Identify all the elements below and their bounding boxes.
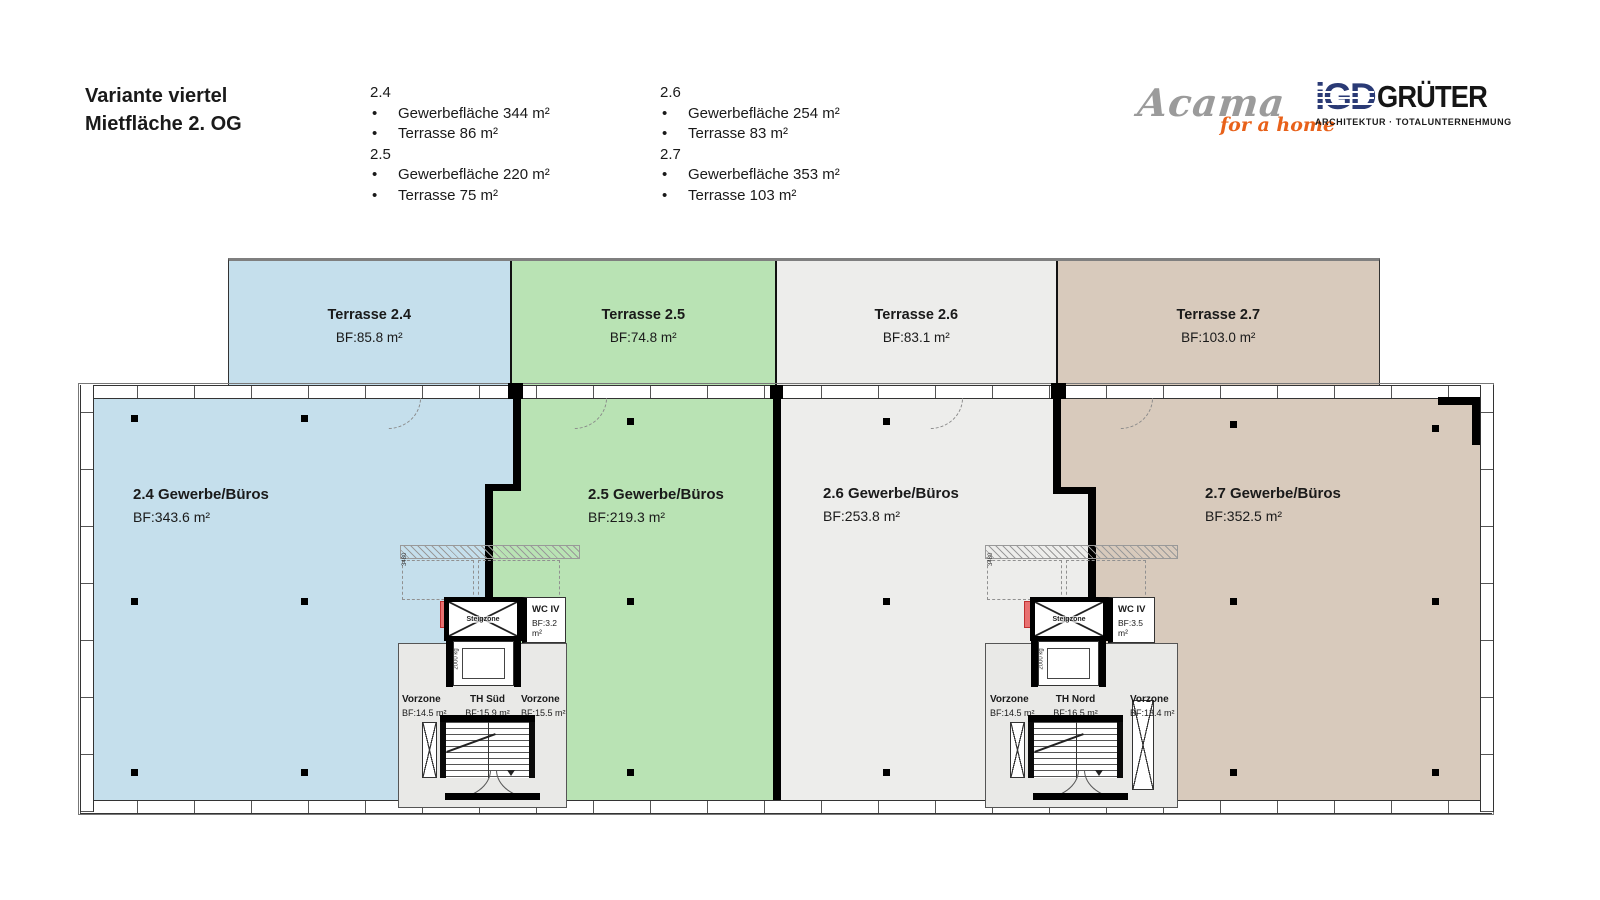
elevator-capacity-label: 2000 kg (454, 648, 460, 669)
page-title-line-1: Variante viertel (85, 82, 242, 110)
column (627, 598, 634, 605)
shaft-steigzone-box: Steigzone (444, 597, 522, 641)
column (627, 418, 634, 425)
room-name: TH Nord (1028, 694, 1123, 705)
room-area: BF:13.4 m² (1130, 708, 1175, 718)
facade-band-right (1480, 385, 1494, 812)
shaft-side-box (422, 722, 437, 778)
wall-junction (770, 385, 783, 399)
legend-unit-id: 2.7 (660, 145, 840, 166)
room-name: Vorzone (521, 694, 566, 705)
unit-name: 2.7 Gewerbe/Büros (1205, 485, 1341, 502)
column (1230, 598, 1237, 605)
unit-2-4-fill-upper (92, 397, 517, 488)
lift-wall (1031, 640, 1038, 687)
terrace-2-4: Terrasse 2.4 BF:85.8 m² (229, 261, 512, 385)
shaft-side-box (1010, 722, 1025, 778)
gruter-stripe (1314, 97, 1374, 99)
gruter-logo-row: iGD GRÜTER (1315, 80, 1500, 114)
unit-area: BF:253.8 m² (823, 508, 959, 524)
unit-2-5-label: 2.5 Gewerbe/Büros BF:219.3 m² (588, 486, 724, 525)
bullet-icon: • (660, 165, 688, 186)
threshold-wall (1033, 793, 1128, 800)
terrace-area: BF:103.0 m² (1181, 330, 1255, 345)
shaft-steigzone-box: Steigzone (1030, 597, 1108, 641)
legend-item-text: Gewerbefläche 353 m² (688, 165, 840, 186)
wc-label: WC IV (532, 604, 565, 615)
sanitary-hatch-strip (400, 545, 580, 559)
legend-item: •Terrasse 75 m² (370, 186, 550, 207)
sanitary-dashed-room (478, 560, 560, 600)
legend-item-text: Terrasse 103 m² (688, 186, 796, 207)
legend-group-2-6: 2.6 •Gewerbefläche 254 m² •Terrasse 83 m… (660, 83, 840, 145)
legend-column-left: 2.4 •Gewerbefläche 344 m² •Terrasse 86 m… (370, 83, 550, 206)
elevator-cab (462, 648, 505, 679)
terrace-area: BF:83.1 m² (883, 330, 950, 345)
legend-item: •Gewerbefläche 254 m² (660, 104, 840, 125)
facade-band-bottom (80, 800, 1492, 814)
unit-area: BF:219.3 m² (588, 509, 724, 525)
legend-item-text: Terrasse 75 m² (398, 186, 498, 207)
unit-2-6-fill-upper (777, 397, 1058, 490)
legend-item-text: Gewerbefläche 220 m² (398, 165, 550, 186)
column (883, 418, 890, 425)
unit-area: BF:343.6 m² (133, 509, 269, 525)
terrace-band: Terrasse 2.4 BF:85.8 m² Terrasse 2.5 BF:… (228, 258, 1380, 385)
page-title-line-2: Mietfläche 2. OG (85, 110, 242, 138)
legend-item-text: Gewerbefläche 254 m² (688, 104, 840, 125)
bullet-icon: • (660, 186, 688, 207)
bullet-icon: • (660, 104, 688, 125)
unit-2-6-label: 2.6 Gewerbe/Büros BF:253.8 m² (823, 485, 959, 524)
wc-room: WC IV BF:3.5 m² (1108, 597, 1155, 643)
elevator: 2000 kg (453, 641, 514, 686)
column (1432, 769, 1439, 776)
page-title: Variante viertel Mietfläche 2. OG (85, 82, 242, 138)
legend-unit-id: 2.5 (370, 145, 550, 166)
facade-band-top (80, 385, 1492, 399)
threshold-wall (445, 793, 540, 800)
legend-group-2-7: 2.7 •Gewerbefläche 353 m² •Terrasse 103 … (660, 145, 840, 207)
legend-item-text: Terrasse 86 m² (398, 124, 498, 145)
wc-area: BF:3.2 m² (532, 618, 565, 638)
wc-area: BF:3.5 m² (1118, 618, 1154, 638)
room-name: Vorzone (1130, 694, 1175, 705)
unit-area: BF:352.5 m² (1205, 508, 1341, 524)
facade-band-left (80, 385, 94, 812)
bullet-icon: • (370, 124, 398, 145)
legend-item: •Terrasse 83 m² (660, 124, 840, 145)
sanitary-dashed-room (1066, 560, 1146, 600)
legend-column-right: 2.6 •Gewerbefläche 254 m² •Terrasse 83 m… (660, 83, 840, 206)
legend-group-2-5: 2.5 •Gewerbefläche 220 m² •Terrasse 75 m… (370, 145, 550, 207)
terrace-area: BF:85.8 m² (336, 330, 403, 345)
gruter-tagline: ARCHITEKTUR · TOTALUNTERNEHMUNG (1315, 117, 1500, 127)
unit-name: 2.4 Gewerbe/Büros (133, 486, 269, 503)
gruter-wordmark: GRÜTER (1377, 80, 1487, 114)
legend-item-text: Terrasse 83 m² (688, 124, 788, 145)
wall-corner-right (1472, 397, 1480, 445)
terrace-2-6: Terrasse 2.6 BF:83.1 m² (777, 261, 1058, 385)
gruter-stripe (1314, 91, 1374, 93)
legend-item-text: Gewerbefläche 344 m² (398, 104, 550, 125)
terrace-label: Terrasse 2.4 (327, 307, 411, 323)
wall-2-6-2-7-upper (1053, 395, 1061, 494)
column (131, 598, 138, 605)
column (883, 598, 890, 605)
acama-logo: Acama for a home (1138, 80, 1328, 140)
legend-unit-id: 2.4 (370, 83, 550, 104)
sanitary-dashed-room (987, 560, 1062, 600)
wall-junction (1051, 383, 1066, 399)
elevator-cab (1047, 648, 1090, 679)
column (131, 415, 138, 422)
wc-label: WC IV (1118, 604, 1154, 615)
shaft-label: Steigzone (464, 616, 501, 623)
column (301, 415, 308, 422)
dimension-label: 3480 (402, 553, 408, 566)
column (1432, 598, 1439, 605)
shaft-label: Steigzone (1050, 616, 1087, 623)
legend-item: •Terrasse 103 m² (660, 186, 840, 207)
terrace-label: Terrasse 2.7 (1177, 307, 1261, 323)
legend-group-2-4: 2.4 •Gewerbefläche 344 m² •Terrasse 86 m… (370, 83, 550, 145)
floorplan-page: Variante viertel Mietfläche 2. OG 2.4 •G… (0, 0, 1600, 900)
gruter-mark-icon: iGD (1315, 80, 1375, 114)
column (301, 598, 308, 605)
legend-item: •Gewerbefläche 220 m² (370, 165, 550, 186)
column (883, 769, 890, 776)
gruter-logo: iGD GRÜTER ARCHITEKTUR · TOTALUNTERNEHMU… (1315, 80, 1500, 127)
elevator-capacity-label: 2000 kg (1039, 648, 1045, 669)
unit-name: 2.5 Gewerbe/Büros (588, 486, 724, 503)
bullet-icon: • (370, 186, 398, 207)
column (627, 769, 634, 776)
bullet-icon: • (370, 165, 398, 186)
column (1432, 425, 1439, 432)
column (1230, 421, 1237, 428)
stair-top-wall (440, 715, 535, 722)
lift-wall (1099, 640, 1106, 687)
wall-2-4-2-5-upper (513, 395, 521, 491)
unit-2-5-fill-upper (517, 397, 777, 488)
wall-2-5-2-6 (773, 397, 781, 800)
legend-item: •Terrasse 86 m² (370, 124, 550, 145)
unit-name: 2.6 Gewerbe/Büros (823, 485, 959, 502)
bullet-icon: • (660, 124, 688, 145)
terrace-label: Terrasse 2.6 (875, 307, 959, 323)
unit-2-7-label: 2.7 Gewerbe/Büros BF:352.5 m² (1205, 485, 1341, 524)
terrace-2-7: Terrasse 2.7 BF:103.0 m² (1058, 261, 1379, 385)
bullet-icon: • (370, 104, 398, 125)
column (1230, 769, 1237, 776)
wc-room: WC IV BF:3.2 m² (522, 597, 566, 643)
legend-item: •Gewerbefläche 353 m² (660, 165, 840, 186)
unit-2-4-label: 2.4 Gewerbe/Büros BF:343.6 m² (133, 486, 269, 525)
vorzone-right-label: Vorzone BF:13.4 m² (1130, 694, 1175, 718)
terrace-area: BF:74.8 m² (610, 330, 677, 345)
elevator: 2000 kg (1038, 641, 1099, 686)
gruter-stripe (1314, 103, 1374, 105)
column (301, 769, 308, 776)
dimension-label: 3480 (988, 553, 994, 566)
sanitary-dashed-room (402, 560, 474, 600)
sanitary-hatch-strip (985, 545, 1178, 559)
lift-wall (514, 640, 521, 687)
terrace-label: Terrasse 2.5 (602, 307, 686, 323)
lift-wall (446, 640, 453, 687)
legend-item: •Gewerbefläche 344 m² (370, 104, 550, 125)
column (131, 769, 138, 776)
wall-junction (508, 383, 523, 399)
legend-unit-id: 2.6 (660, 83, 840, 104)
terrace-2-5: Terrasse 2.5 BF:74.8 m² (512, 261, 778, 385)
stair-top-wall (1028, 715, 1123, 722)
